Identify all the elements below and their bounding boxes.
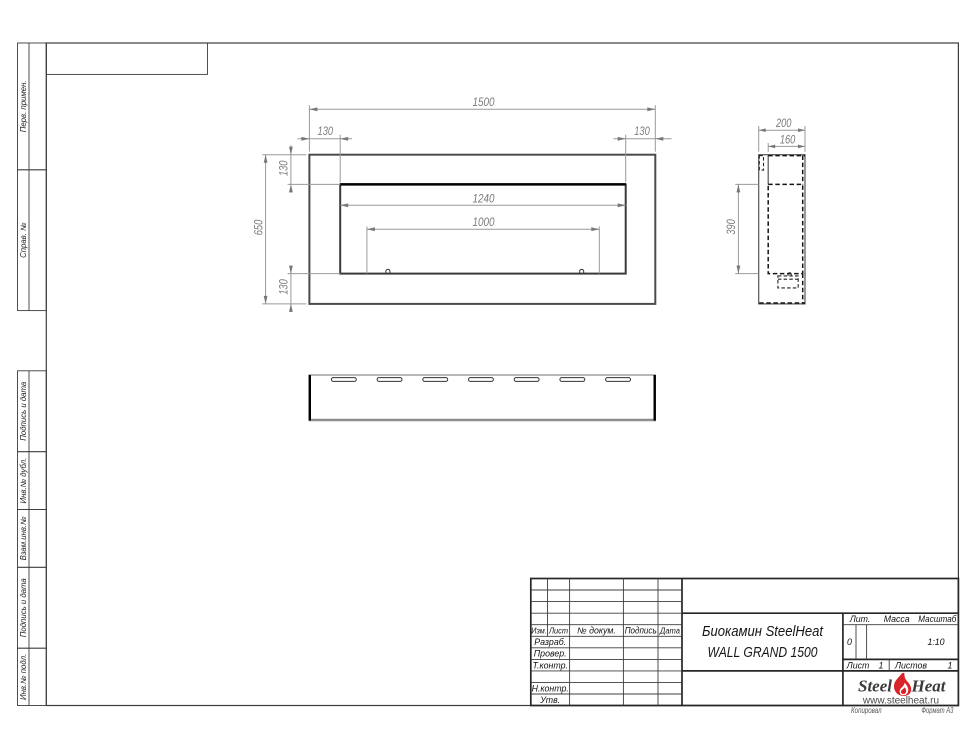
svg-text:130: 130 <box>276 160 290 176</box>
svg-text:Взам.инв.№: Взам.инв.№ <box>19 516 28 560</box>
svg-text:www.steelheat.ru: www.steelheat.ru <box>862 696 939 707</box>
svg-text:Инв.№ подл.: Инв.№ подл. <box>19 654 28 700</box>
svg-text:1: 1 <box>878 660 883 670</box>
svg-text:Подпись: Подпись <box>625 626 657 636</box>
svg-text:160: 160 <box>780 133 796 147</box>
svg-text:130: 130 <box>318 124 334 138</box>
svg-text:Steel: Steel <box>858 677 892 696</box>
svg-text:130: 130 <box>276 279 290 295</box>
svg-text:1000: 1000 <box>473 215 495 229</box>
svg-text:Формат А3: Формат А3 <box>921 706 953 715</box>
svg-text:Дата: Дата <box>659 627 680 636</box>
svg-text:1:10: 1:10 <box>927 637 944 647</box>
svg-text:Н.контр.: Н.контр. <box>532 683 569 693</box>
svg-text:Масса: Масса <box>884 614 910 624</box>
svg-text:1500: 1500 <box>473 95 495 109</box>
svg-text:200: 200 <box>775 116 792 130</box>
svg-text:Разраб.: Разраб. <box>534 637 566 647</box>
svg-text:Т.контр.: Т.контр. <box>532 660 568 670</box>
svg-text:Подпись и дата: Подпись и дата <box>19 578 28 638</box>
svg-text:Биокамин SteelHeat: Биокамин SteelHeat <box>702 623 824 640</box>
svg-text:Перв. примен.: Перв. примен. <box>19 80 28 132</box>
svg-text:Провер.: Провер. <box>534 649 567 659</box>
svg-text:Утв.: Утв. <box>539 695 560 705</box>
svg-text:№ докум.: № докум. <box>577 626 616 636</box>
svg-text:Листов: Листов <box>894 660 927 670</box>
svg-text:1: 1 <box>948 660 953 670</box>
svg-text:Лит.: Лит. <box>849 614 871 624</box>
svg-text:Подпись и дата: Подпись и дата <box>19 381 28 441</box>
svg-text:390: 390 <box>724 219 738 235</box>
svg-text:Лист: Лист <box>548 627 568 636</box>
svg-text:130: 130 <box>634 124 650 138</box>
svg-text:Лист: Лист <box>846 660 870 670</box>
svg-text:WALL GRAND 1500: WALL GRAND 1500 <box>708 644 819 661</box>
svg-text:650: 650 <box>251 220 265 236</box>
svg-text:Изм.: Изм. <box>531 627 547 636</box>
svg-text:0: 0 <box>847 637 852 647</box>
svg-text:Масштаб: Масштаб <box>918 614 957 624</box>
svg-text:Heat: Heat <box>911 677 947 696</box>
svg-text:Инв.№ дубл.: Инв.№ дубл. <box>19 458 28 504</box>
svg-text:Справ. №: Справ. № <box>19 222 28 257</box>
svg-text:1240: 1240 <box>473 191 495 205</box>
svg-text:Копировал: Копировал <box>851 706 882 715</box>
